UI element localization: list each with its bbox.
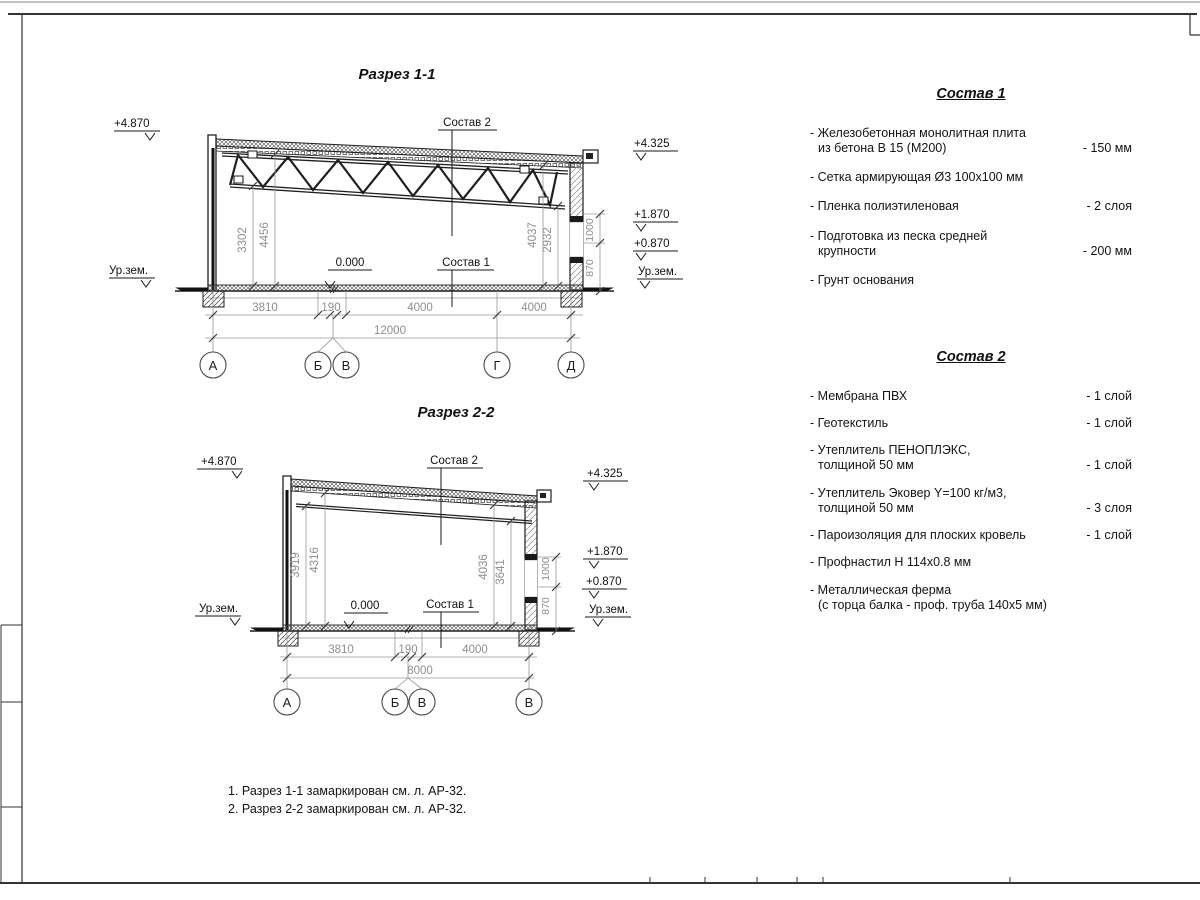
- s2-axis-label: В: [525, 695, 534, 710]
- s1-ground-left: Ур.зем.: [109, 265, 148, 277]
- item-value: - 1 слой: [1086, 528, 1132, 543]
- s1-dim: 190: [321, 302, 340, 314]
- s2-ground-right: Ур.зем.: [589, 604, 628, 616]
- item-name: - Подготовка из песка средней крупности: [810, 229, 987, 260]
- list-item: - Утеплитель Эковер Y=100 кг/м3, толщино…: [810, 486, 1132, 517]
- s2-elev-0870: +0.870: [586, 576, 622, 588]
- item-name: - Сетка армирующая Ø3 100x100 мм: [810, 170, 1023, 185]
- list-item: - Подготовка из песка средней крупности …: [810, 229, 1132, 260]
- s2-axis-bubbles: [274, 689, 542, 715]
- s2-dim: 190: [398, 644, 417, 656]
- s2-vdim: 4036: [478, 554, 490, 580]
- s2-dimension-ticks: [283, 489, 560, 682]
- note-line: 1. Разрез 1-1 замаркирован см. л. АР-32.: [228, 783, 466, 801]
- list-item: - Геотекстиль - 1 слой: [810, 416, 1132, 431]
- list-item: - Пароизоляция для плоских кровель - 1 с…: [810, 528, 1132, 543]
- list-item: - Пленка полиэтиленовая - 2 слоя: [810, 199, 1132, 214]
- s2-label-sostav2: Состав 2: [430, 455, 478, 467]
- section-1-1: Разрез 1-1 Состав 2 Состав 1 0.000 +4.87…: [109, 66, 683, 378]
- s2-dim: 3810: [328, 644, 354, 656]
- s1-title: Разрез 1-1: [358, 66, 435, 83]
- s2-wall-dim: 1000: [540, 557, 552, 581]
- list-item: - Мембрана ПВХ - 1 слой: [810, 389, 1132, 404]
- s1-dim: 3810: [252, 302, 278, 314]
- s2-window-opening: [525, 560, 538, 597]
- item-value: - 150 мм: [1083, 141, 1132, 156]
- item-value: - 1 слой: [1086, 458, 1132, 473]
- s2-window-lintel-bottom: [525, 597, 537, 603]
- s1-axis-label: Б: [314, 358, 323, 373]
- list-item: - Сетка армирующая Ø3 100x100 мм: [810, 170, 1132, 185]
- item-name: - Утеплитель ПЕНОПЛЭКС, толщиной 50 мм: [810, 443, 970, 474]
- s1-structure: [175, 135, 614, 307]
- s1-wall-dim: 870: [584, 259, 596, 277]
- s1-vdim: 2932: [542, 227, 554, 253]
- sostav2-heading: Состав 2: [810, 349, 1132, 367]
- item-name: - Грунт основания: [810, 273, 914, 288]
- s1-foundation-right: [561, 291, 582, 307]
- drawing-sheet: Разрез 1-1 Состав 2 Состав 1 0.000 +4.87…: [0, 0, 1200, 900]
- sostav1-panel: Состав 1 - Железобетонная монолитная пли…: [810, 86, 1132, 302]
- s1-dim: 4000: [521, 302, 547, 314]
- s2-elev-top-left: +4.870: [201, 456, 237, 468]
- s2-wall-dim: 870: [540, 597, 552, 615]
- s2-axis-label: Б: [391, 695, 400, 710]
- note-line: 2. Разрез 2-2 замаркирован см. л. АР-32.: [228, 801, 466, 819]
- s2-dim: 4000: [462, 644, 488, 656]
- item-name: - Утеплитель Эковер Y=100 кг/м3, толщино…: [810, 486, 1006, 517]
- s1-label-sostav2: Состав 2: [443, 117, 491, 129]
- item-value: - 200 мм: [1083, 244, 1132, 259]
- s1-label-sostav1: Состав 1: [442, 257, 490, 269]
- list-item: - Утеплитель ПЕНОПЛЭКС, толщиной 50 мм -…: [810, 443, 1132, 474]
- list-item: - Профнастил Н 114x0.8 мм: [810, 555, 1132, 570]
- s2-ground-left: Ур.зем.: [199, 603, 238, 615]
- s2-edge-beam-core: [540, 493, 546, 498]
- s2-vdim: 3641: [495, 559, 507, 585]
- s2-zero-level: 0.000: [351, 600, 380, 612]
- s1-dim-total: 12000: [374, 325, 406, 337]
- s1-elev-0870: +0.870: [634, 238, 670, 250]
- item-value: - 3 слоя: [1087, 501, 1132, 516]
- s2-dim-total: 8000: [407, 665, 433, 677]
- s1-axis-bubbles: [200, 352, 584, 378]
- s2-window-lintel-top: [525, 554, 537, 560]
- s1-axis-label: Д: [567, 358, 576, 373]
- s2-vdim: 4316: [309, 547, 321, 573]
- s1-wall-dim: 1000: [584, 218, 596, 242]
- list-item: - Грунт основания: [810, 273, 1132, 288]
- frame-corner-box: [1190, 14, 1200, 35]
- s2-label-sostav1: Состав 1: [426, 599, 474, 611]
- s1-vdim: 3302: [237, 227, 249, 253]
- s1-elev-top-left: +4.870: [114, 118, 150, 130]
- s1-foundation-left: [203, 291, 224, 307]
- s1-window-opening: [570, 222, 584, 257]
- item-name: - Металлическая ферма (с торца балка - п…: [810, 583, 1047, 614]
- item-value: - 1 слой: [1086, 389, 1132, 404]
- s1-vdim: 4037: [527, 222, 539, 248]
- s2-foundation-left: [278, 631, 298, 646]
- s2-elev-roof-right: +4.325: [587, 468, 623, 480]
- sostav2-panel: Состав 2 - Мембрана ПВХ - 1 слой - Геоте…: [810, 349, 1132, 625]
- s1-vdim: 4456: [259, 222, 271, 248]
- s1-ground-right: Ур.зем.: [638, 266, 677, 278]
- s2-elev-1870: +1.870: [587, 546, 623, 558]
- s1-elev-roof-right: +4.325: [634, 138, 670, 150]
- item-name: - Железобетонная монолитная плита из бет…: [810, 126, 1026, 157]
- s1-axis-label: А: [209, 358, 218, 373]
- s2-title: Разрез 2-2: [417, 404, 495, 421]
- s2-edge-beam-line: [296, 504, 532, 524]
- s1-elev-1870: +1.870: [634, 209, 670, 221]
- item-name: - Пленка полиэтиленовая: [810, 199, 959, 214]
- s1-edge-beam-core: [586, 153, 593, 159]
- item-name: - Мембрана ПВХ: [810, 389, 907, 404]
- s2-axis-label: А: [283, 695, 292, 710]
- list-item: - Металлическая ферма (с торца балка - п…: [810, 583, 1132, 614]
- item-name: - Геотекстиль: [810, 416, 888, 431]
- s2-vdim: 3919: [290, 552, 302, 578]
- filing-strip: [1, 625, 22, 883]
- s1-floor-slab: [208, 285, 583, 291]
- s2-axis-label: В: [418, 695, 427, 710]
- s1-zero-level: 0.000: [336, 257, 365, 269]
- list-item: - Железобетонная монолитная плита из бет…: [810, 126, 1132, 157]
- s1-window-lintel-top: [570, 216, 583, 222]
- item-value: - 2 слоя: [1087, 199, 1132, 214]
- s1-axis-label: В: [342, 358, 351, 373]
- item-name: - Пароизоляция для плоских кровель: [810, 528, 1026, 543]
- sostav1-heading: Состав 1: [810, 86, 1132, 104]
- item-value: - 1 слой: [1086, 416, 1132, 431]
- sheet-notes: 1. Разрез 1-1 замаркирован см. л. АР-32.…: [228, 783, 466, 818]
- item-name: - Профнастил Н 114x0.8 мм: [810, 555, 971, 570]
- s1-dim: 4000: [407, 302, 433, 314]
- s1-axis-label: Г: [493, 358, 500, 373]
- section-2-2: Разрез 2-2 Состав 2 Состав 1 0.000 +4.87…: [195, 404, 631, 715]
- s1-window-lintel-bottom: [570, 257, 583, 263]
